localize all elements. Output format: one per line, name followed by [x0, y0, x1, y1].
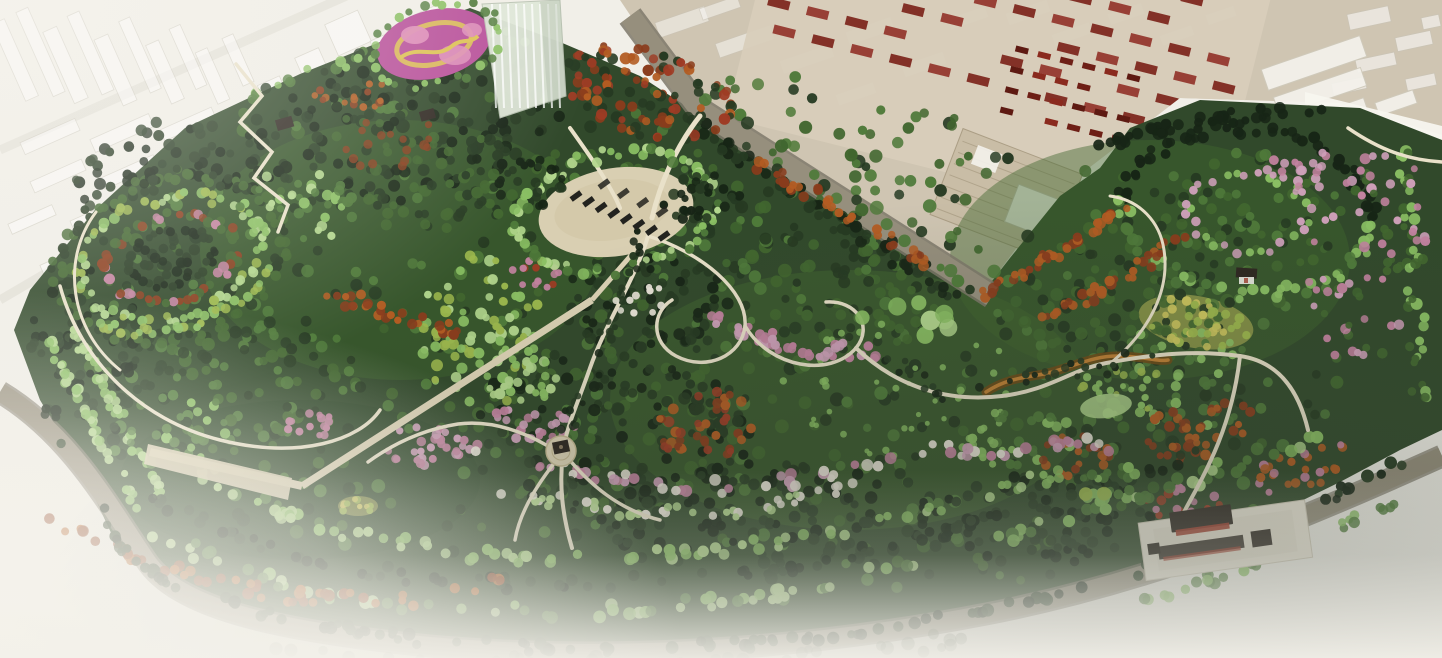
park-aerial-rendering	[0, 0, 1442, 658]
park-rendering-stage	[0, 0, 1442, 658]
bottom-fog	[0, 470, 1442, 658]
fog-vignette	[0, 0, 1442, 658]
